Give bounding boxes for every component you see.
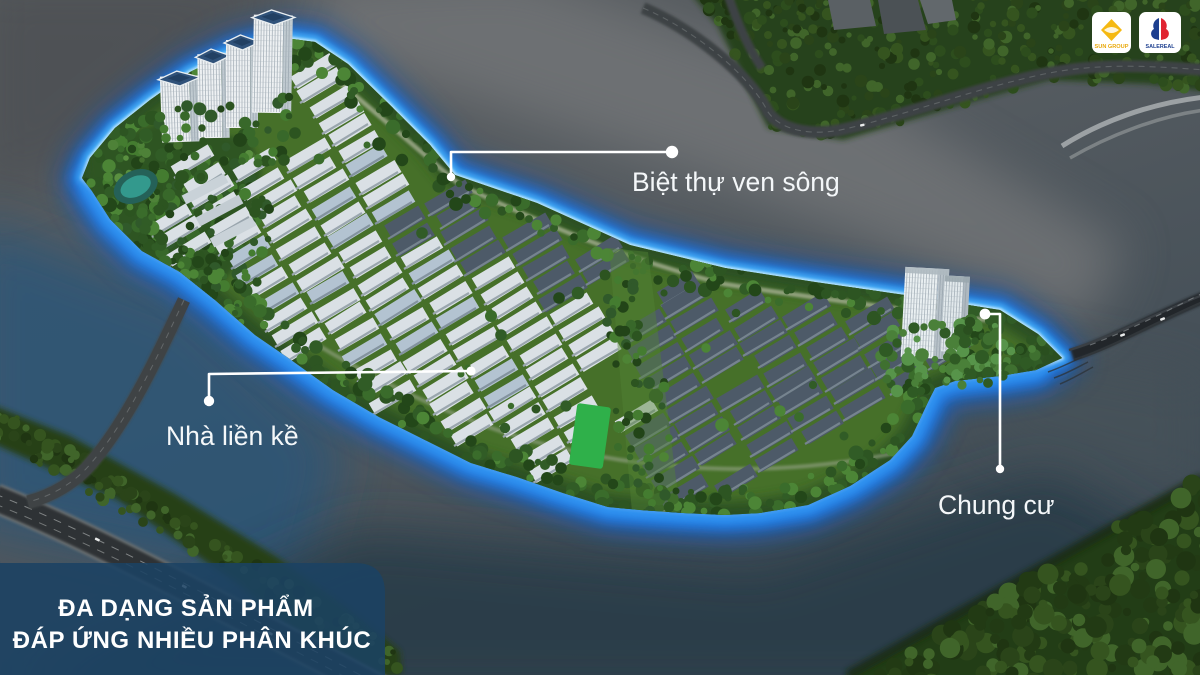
svg-text:SUN GROUP: SUN GROUP: [1095, 44, 1129, 50]
svg-text:SALEREAL: SALEREAL: [1145, 44, 1175, 50]
svg-text:ĐA DẠNG SẢN PHẨM: ĐA DẠNG SẢN PHẨM: [58, 593, 313, 622]
svg-text:ĐÁP ỨNG NHIỀU PHÂN KHÚC: ĐÁP ỨNG NHIỀU PHÂN KHÚC: [13, 626, 372, 654]
svg-text:Biệt thự ven sông: Biệt thự ven sông: [632, 167, 840, 197]
svg-text:Chung cư: Chung cư: [938, 490, 1054, 520]
svg-text:Nhà liền kề: Nhà liền kề: [166, 421, 299, 451]
